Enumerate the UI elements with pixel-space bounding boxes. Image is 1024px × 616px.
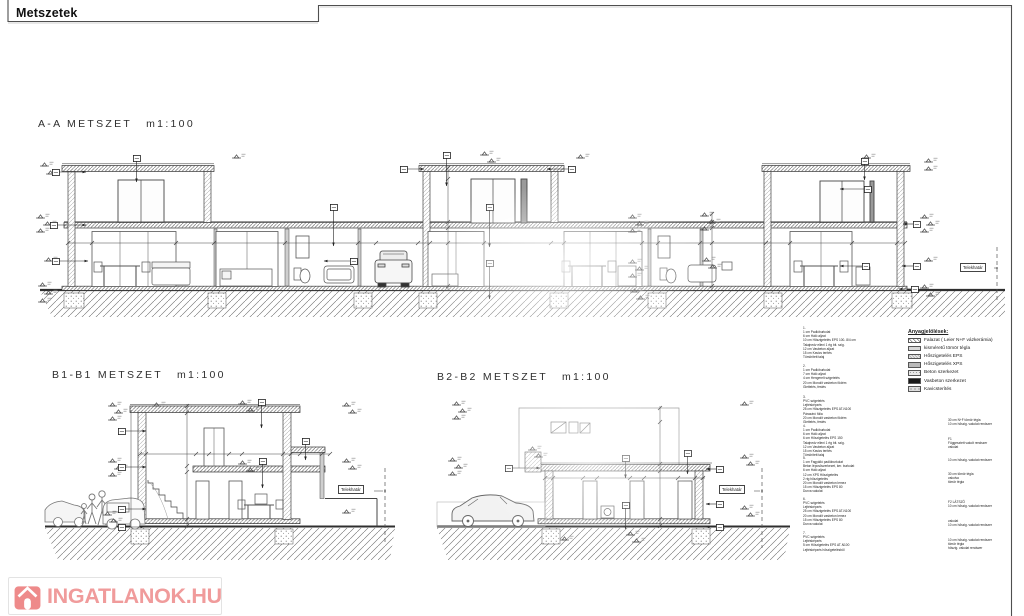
section-b2-drawing	[437, 401, 790, 560]
ltgray-swatch	[908, 346, 921, 352]
house-icon	[14, 583, 41, 610]
canopy-slab	[288, 447, 325, 453]
legend-title: Anyagjelölések:	[908, 329, 1022, 335]
ground-windows	[92, 232, 852, 287]
parapet	[525, 452, 541, 472]
drawing-canvas	[0, 0, 1024, 616]
legend-row: Vasbeton szerkezet	[908, 377, 1022, 385]
sheet-title: Metszetek	[16, 6, 78, 20]
car-garage	[375, 251, 412, 287]
ingatlanok-watermark: INGATLANOK.HU	[8, 577, 222, 615]
section-title-a-a: A-A METSZETm1:100	[38, 118, 195, 130]
boundary-label-a-a: Telekhatár	[960, 263, 986, 272]
section-scale: m1:100	[146, 118, 195, 130]
roof-slab	[130, 406, 300, 413]
appliance	[601, 506, 614, 518]
ground-hatch	[40, 291, 1005, 317]
ground-hatch	[45, 528, 395, 560]
section-label: B1-B1 METSZET	[52, 369, 163, 381]
legend-label: Beton szerkezet	[924, 370, 958, 375]
boundary-label-b2: Telekhatár	[719, 485, 745, 494]
car-hatchback	[452, 495, 534, 527]
ground-hatch	[437, 528, 790, 560]
legend-row: Kavicsterítés	[908, 385, 1022, 393]
section-scale: m1:100	[562, 371, 611, 383]
ground-slab	[62, 286, 907, 290]
section-b1-drawing	[45, 399, 395, 560]
floor-slab	[538, 519, 710, 524]
vasbeton-swatch	[908, 378, 921, 384]
legend-label: kisméretű tömör tégla	[924, 346, 970, 351]
legend-label: Falazat ( Leier N+F vázkerámia)	[924, 338, 993, 343]
legend-label: Hőszigetelés EPS	[924, 354, 962, 359]
materials-legend: Anyagjelölések: Falazat ( Leier N+F vázk…	[908, 329, 1022, 393]
eps-swatch	[908, 354, 921, 360]
upper-windows	[118, 179, 874, 223]
section-title-b2: B2-B2 METSZETm1:100	[437, 371, 611, 383]
legend-row: kisméretű tömör tégla	[908, 345, 1022, 353]
upper-projection	[519, 408, 679, 468]
legend-label: Hőszigetelés XPS	[924, 362, 962, 367]
legend-label: Vasbeton szerkezet	[924, 379, 966, 384]
roof-slabs	[62, 164, 910, 172]
legend-row: Falazat ( Leier N+F vázkerámia)	[908, 337, 1022, 345]
section-scale: m1:100	[177, 369, 226, 381]
section-label: A-A METSZET	[38, 118, 132, 130]
beton-swatch	[908, 370, 921, 376]
furniture	[238, 494, 283, 519]
xps-swatch	[908, 362, 921, 368]
doors	[583, 481, 692, 519]
section-label: B2-B2 METSZET	[437, 371, 548, 383]
boundary-label-b1: Telekhatár	[338, 485, 364, 494]
car-sedan	[45, 501, 85, 527]
drawing-sheet: Metszetek A-A METSZETm1:100 B1-B1 METSZE…	[0, 0, 1024, 616]
legend-row: Hőszigetelés XPS	[908, 361, 1022, 369]
floor-slab	[130, 519, 300, 524]
section-title-b1: B1-B1 METSZETm1:100	[52, 369, 226, 381]
staircase	[148, 480, 183, 519]
legend-row: Beton szerkezet	[908, 369, 1022, 377]
legend-row: Hőszigetelés EPS	[908, 353, 1022, 361]
legend-items: Falazat ( Leier N+F vázkerámia)kisméretű…	[908, 337, 1022, 394]
hatch-swatch	[908, 338, 921, 344]
roof-slab	[538, 465, 710, 472]
legend-label: Kavicsterítés	[924, 387, 951, 392]
kavics-swatch	[908, 386, 921, 392]
doors-windows	[196, 428, 242, 519]
watermark-text: INGATLANOK.HU	[47, 584, 222, 609]
section-a-a-drawing	[36, 151, 1005, 317]
